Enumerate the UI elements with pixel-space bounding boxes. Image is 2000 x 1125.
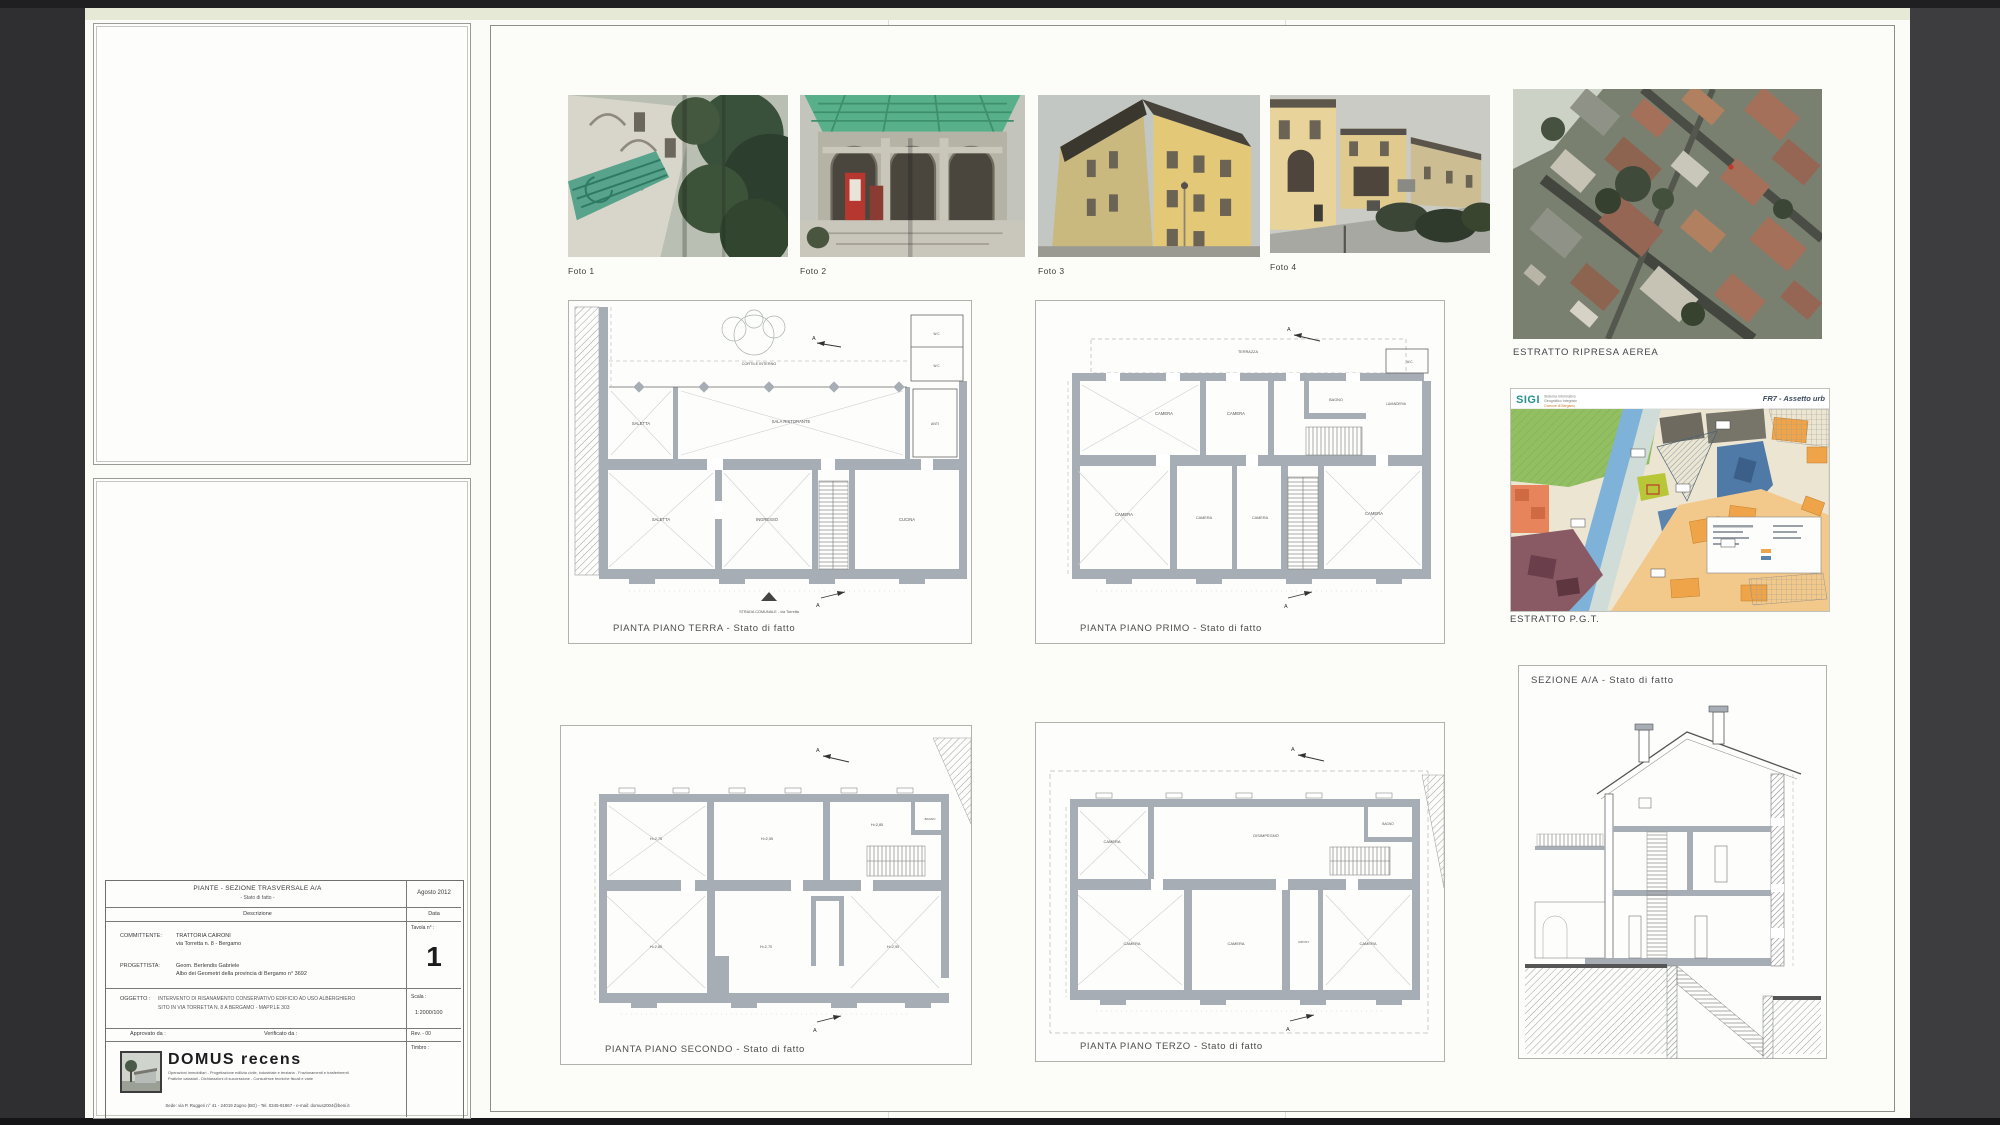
room-label: ANTI: [931, 422, 939, 426]
room-label: SALETTA: [632, 421, 651, 426]
section-arrow-icon: A: [816, 591, 845, 609]
svg-text:A: A: [812, 336, 816, 342]
photo-caption: Foto 4: [1270, 262, 1297, 272]
section-aa-box: SEZIONE A/A - Stato di fatto: [1518, 665, 1827, 1059]
svg-text:A: A: [1291, 747, 1295, 753]
room-label: CAMERA: [1359, 941, 1376, 946]
titleblock-date-cell: Agosto 2012: [406, 881, 461, 907]
drawing-sheet: Foto 1 Foto 2: [85, 8, 1910, 1118]
room-label: CUCINA: [899, 517, 915, 522]
title-block: PIANTE - SEZIONE TRASVERSALE A/A - Stato…: [105, 880, 464, 1119]
room-label: CAMERA: [1227, 411, 1245, 416]
room-label: H=2,80: [650, 945, 662, 949]
room-label: SALETTA: [652, 517, 671, 522]
descr-label: Descrizione: [106, 911, 409, 917]
photo-foto3: [1038, 95, 1260, 257]
titleblock-row-parties: COMMITTENTE: TRATTORIA CAIRONI via Torre…: [106, 921, 461, 989]
plan-piano-terzo: CAMERA DISIMPEGNO BAGNO CAMERA CAMERA RI…: [1035, 722, 1445, 1062]
section-drawing: [1519, 666, 1826, 1058]
room-label: SALA RISTORANTE: [772, 419, 811, 424]
street-label: STRADA COMUNALE - via Torretta: [739, 610, 800, 614]
section-arrow-icon: A: [812, 336, 841, 347]
progettista-albo: Albo dei Geometri della provincia di Ber…: [176, 971, 307, 977]
domus-logo-icon: [120, 1051, 162, 1093]
room-label: BAGNO: [925, 817, 937, 821]
tavola-number: 1: [407, 943, 461, 971]
blank-panel-top: [93, 23, 471, 465]
room-label: DISIMPEGNO: [1253, 833, 1279, 838]
plan-caption: PIANTA PIANO PRIMO - Stato di fatto: [1080, 623, 1262, 634]
oggetto-line1: INTERVENTO DI RISANAMENTO CONSERVATIVO E…: [158, 996, 403, 1002]
section-arrow-icon: A: [816, 748, 849, 762]
photo-foto2: [800, 95, 1025, 257]
foto4-image: [1270, 95, 1490, 253]
titleblock-rev-cell: Rev. - 00: [406, 1028, 461, 1041]
room-label: W.C.: [934, 332, 941, 336]
aerial-caption: ESTRATTO RIPRESA AEREA: [1513, 347, 1659, 358]
room-label: CAMERA: [1196, 516, 1213, 520]
room-label: CAMERA: [1227, 941, 1244, 946]
sheet-top-band: [85, 8, 1910, 20]
aerial-image: [1513, 89, 1822, 339]
plan-caption: PIANTA PIANO SECONDO - Stato di fatto: [605, 1044, 805, 1055]
foto1-image: [568, 95, 788, 257]
photo-caption: Foto 1: [568, 266, 595, 276]
titleblock-row-descr: Descrizione Data: [106, 907, 461, 922]
sheet-title: PIANTE - SEZIONE TRASVERSALE A/A: [106, 885, 409, 892]
section-arrow-icon: A: [813, 1015, 841, 1034]
room-label: BAGNO: [1329, 398, 1343, 402]
left-black-bar: [0, 8, 85, 1118]
room-label: BAGNO: [1382, 822, 1394, 826]
oggetto-label: OGGETTO :: [120, 996, 150, 1002]
plan-secondo-drawing: H=2,75 H=2,55 H=2,85 BAGNO H=2,80 H=2,70…: [561, 726, 971, 1064]
room-label: H=2,70: [760, 945, 772, 949]
sigi-logo-text: SIGI: [1516, 394, 1540, 406]
pgt-map-image: SIGI Sistema Informativo Geografico Inte…: [1511, 389, 1829, 611]
data-label: Data: [407, 911, 461, 917]
titleblock-scala-cell: Scala : 1:2000/100: [406, 988, 461, 1028]
room-label: W.C.: [934, 364, 941, 368]
timbro-label: Timbro :: [411, 1045, 429, 1051]
domus-tagline1: Operazioni immobiliari - Progettazione e…: [168, 1070, 408, 1075]
plan-piano-primo: TERRAZZA CAMERA CAMERA BAGNO LAVANDERIA …: [1035, 300, 1445, 644]
titleblock-timbro-cell: Timbro :: [406, 1041, 461, 1117]
verificato-label: Verificato da :: [264, 1031, 297, 1037]
photo-foto4: [1270, 95, 1490, 253]
room-label: CAMERA: [1123, 941, 1140, 946]
titleblock-row-logo: DOMUS recens Operazioni immobiliari - Pr…: [106, 1041, 461, 1117]
plan-terra-drawing: CORTILE INTERNO SALETTA SALA RISTORANTE …: [569, 301, 971, 643]
plan-piano-terra: CORTILE INTERNO SALETTA SALA RISTORANTE …: [568, 300, 972, 644]
room-label: H=2,75: [650, 837, 662, 841]
room-label: W.C.: [1407, 360, 1414, 364]
sigi-sub3: Comune di Bergamo: [1544, 404, 1575, 408]
pgt-map-extract: SIGI Sistema Informativo Geografico Inte…: [1510, 388, 1830, 612]
committente-label: COMMITTENTE:: [120, 933, 162, 939]
aerial-photo: [1513, 89, 1822, 339]
room-label: LAVANDERIA: [1386, 402, 1407, 406]
section-arrow-icon: A: [1284, 591, 1312, 610]
room-label: CORTILE INTERNO: [742, 362, 777, 366]
oggetto-line2: SITO IN VIA TORRETTA N. 8 A BERGAMO - MA…: [158, 1005, 403, 1011]
plan-caption: PIANTA PIANO TERRA - Stato di fatto: [613, 623, 795, 634]
pgt-caption: ESTRATTO P.G.T.: [1510, 614, 1600, 625]
svg-text:A: A: [1287, 327, 1291, 333]
scala-value: 1:2000/100: [415, 1010, 443, 1016]
room-label: CAMERA: [1365, 511, 1383, 516]
titleblock-tavola-cell: Tavola n° : 1: [406, 921, 461, 988]
progettista-value: Geom. Berlendis Gabriele: [176, 963, 239, 969]
plan-primo-drawing: TERRAZZA CAMERA CAMERA BAGNO LAVANDERIA …: [1036, 301, 1444, 643]
room-label: RIPOST.: [1299, 940, 1310, 944]
room-label: TERRAZZA: [1238, 350, 1259, 354]
room-label: CAMERA: [1115, 512, 1133, 517]
scala-label: Scala :: [411, 994, 426, 1000]
room-label: CAMERA: [1103, 839, 1120, 844]
tavola-label: Tavola n° :: [411, 925, 434, 931]
section-arrow-icon: A: [1291, 747, 1324, 761]
svg-text:A: A: [813, 1028, 817, 1034]
bottom-black-bar: [0, 1118, 2000, 1125]
plan-caption: PIANTA PIANO TERZO - Stato di fatto: [1080, 1041, 1263, 1052]
domus-logo-name: DOMUS recens: [168, 1051, 302, 1069]
titleblock-row-oggetto: OGGETTO : INTERVENTO DI RISANAMENTO CONS…: [106, 988, 461, 1029]
room-label: CAMERA: [1155, 411, 1173, 416]
committente-value: TRATTORIA CAIRONI: [176, 933, 231, 939]
photo-caption: Foto 3: [1038, 266, 1065, 276]
approvato-label: Approvato da :: [130, 1031, 166, 1037]
committente-address: via Torretta n. 8 - Bergamo: [176, 941, 241, 947]
titleblock-row-title: PIANTE - SEZIONE TRASVERSALE A/A - Stato…: [106, 881, 461, 908]
room-label: INGRESSO: [756, 517, 779, 522]
pgt-sheet-ref: FR7 - Assetto urb: [1763, 394, 1826, 403]
svg-text:A: A: [816, 748, 820, 754]
svg-text:A: A: [1284, 604, 1288, 610]
right-black-bar: [1910, 8, 2000, 1118]
sigi-sub2: Geografico Integrato: [1544, 399, 1577, 403]
titleblock-row-approval: Approvato da : Verificato da : Rev. - 00: [106, 1028, 461, 1042]
foto3-image: [1038, 95, 1260, 257]
room-label: CAMERA: [1252, 516, 1269, 520]
progettista-label: PROGETTISTA:: [120, 963, 160, 969]
photo-caption: Foto 2: [800, 266, 827, 276]
sigi-sub1: Sistema Informativo: [1544, 395, 1576, 399]
date-value: Agosto 2012: [407, 890, 461, 896]
plan-terzo-drawing: CAMERA DISIMPEGNO BAGNO CAMERA CAMERA RI…: [1036, 723, 1444, 1061]
sheet-subtitle: - Stato di fatto -: [106, 895, 409, 901]
room-label: H=2,55: [761, 837, 773, 841]
north-arrow-icon: [761, 592, 777, 601]
photo-foto1: [568, 95, 788, 257]
domus-tagline2: Pratiche catastali - Dichiarazioni di su…: [168, 1076, 408, 1081]
plan-piano-secondo: H=2,75 H=2,55 H=2,85 BAGNO H=2,80 H=2,70…: [560, 725, 972, 1065]
svg-text:A: A: [1286, 1027, 1290, 1033]
section-arrow-icon: A: [1286, 1014, 1314, 1033]
top-black-bar: [0, 0, 2000, 8]
room-label: H=2,85: [871, 823, 883, 827]
room-label: H=2,90: [887, 945, 899, 949]
foto2-image: [800, 95, 1025, 257]
titleblock-data-cell: Data: [406, 907, 461, 921]
rev-value: Rev. - 00: [411, 1031, 431, 1037]
svg-text:A: A: [816, 603, 820, 609]
domus-footer: Sede: via P. Ruggeri n° 41 - 24019 Zogno…: [106, 1103, 409, 1108]
